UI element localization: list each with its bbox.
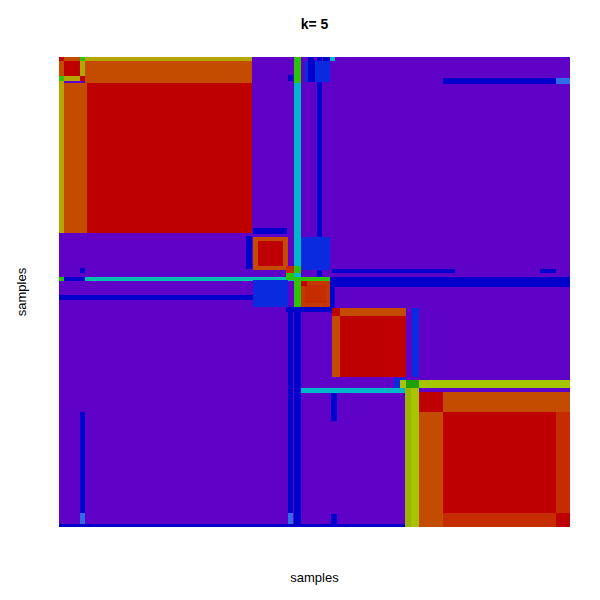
y-axis-label: samples [14, 268, 29, 316]
consensus-plot-figure: k= 5 samples samples [0, 0, 600, 600]
heatmap-area [59, 57, 570, 527]
x-axis-label: samples [59, 570, 570, 585]
plot-title: k= 5 [59, 16, 570, 32]
consensus-heatmap [59, 57, 570, 527]
